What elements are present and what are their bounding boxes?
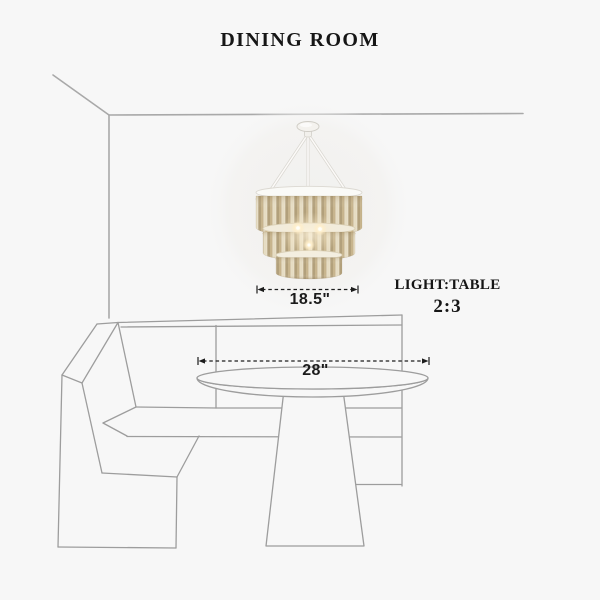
light-table-ratio-caption: LIGHT:TABLE — [380, 277, 515, 294]
dining-room-diagram: DINING ROOM 18.5" 28" LIGHT:TABLE 2:3 — [0, 0, 600, 600]
table-width-label: 28" — [273, 362, 358, 380]
bulb-glow — [279, 212, 339, 256]
chandelier-width-label: 18.5" — [250, 291, 370, 309]
light-table-ratio-value: 2:3 — [380, 296, 515, 318]
pedestal-table-sketch — [197, 367, 428, 546]
page-title: DINING ROOM — [0, 29, 600, 52]
